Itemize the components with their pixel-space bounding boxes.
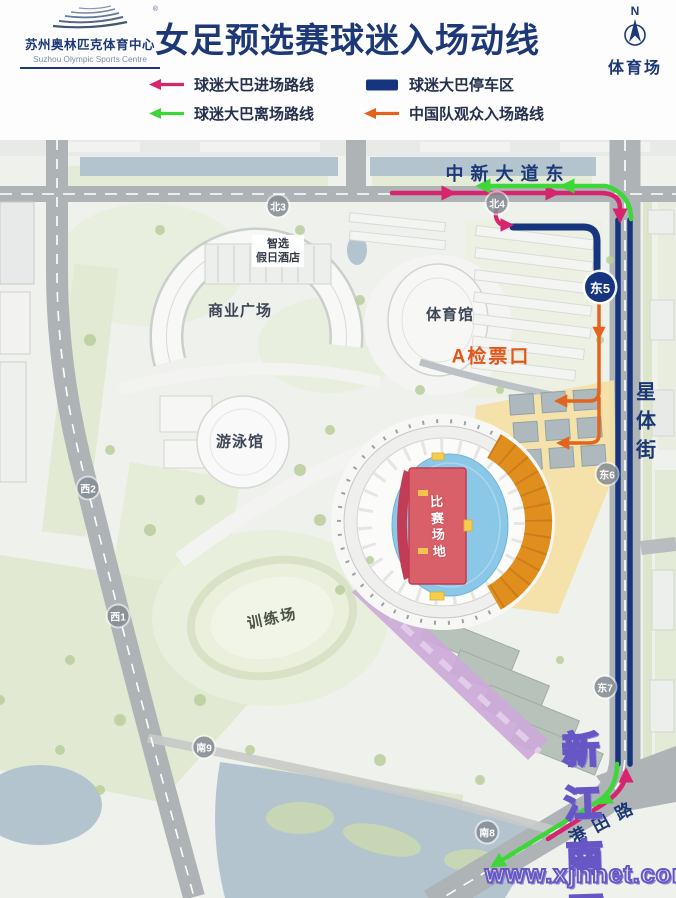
label-ticket-gate-a: A检票口 — [452, 342, 531, 369]
label-swimming-hall: 游泳馆 — [216, 431, 264, 452]
parking-zone-icon — [363, 78, 401, 92]
label-gymnasium: 体育馆 — [426, 304, 474, 325]
orange-arrow-left-icon — [363, 107, 401, 120]
stadium-swoosh-icon — [35, 4, 145, 34]
page-title: 女足预选赛球迷入场动线 — [155, 13, 575, 62]
compass-needle-icon — [620, 18, 650, 48]
logo-rule — [20, 67, 160, 69]
legend-label: 球迷大巴停车区 — [409, 74, 514, 95]
suzhou-olympic-logo: ® 苏州奥林匹克体育中心 Suzhou Olympic Sports Centr… — [20, 4, 160, 69]
gate-badge-east5: 东5 — [585, 272, 615, 302]
legend-item-bus-enter: 球迷大巴进场路线 — [148, 74, 314, 95]
gate-badge-west2: 西2 — [78, 478, 99, 499]
label-match-field: 比赛场地 — [428, 494, 447, 561]
label-commercial-plaza: 商业广场 — [208, 300, 272, 321]
compass-north-label: N — [600, 4, 670, 18]
legend-label: 球迷大巴进场路线 — [194, 74, 314, 95]
label-hotel: 智选 假日酒店 — [252, 235, 304, 267]
road-label-north: 中新大道东 — [446, 160, 571, 186]
legend-label: 球迷大巴离场路线 — [194, 103, 314, 124]
venue-route-map-page: ® 苏州奥林匹克体育中心 Suzhou Olympic Sports Centr… — [0, 0, 676, 898]
watermark-site-url: www.xjnnet.com — [485, 861, 676, 890]
label-hotel-line1: 智选 — [256, 237, 300, 251]
logo-name-en: Suzhou Olympic Sports Centre — [20, 54, 160, 64]
legend-item-china-fans: 中国队观众入场路线 — [363, 103, 544, 124]
road-label-east: 星体街 — [634, 379, 658, 466]
gate-badge-north4: 北4 — [487, 193, 508, 214]
gate-badge-north3: 北3 — [268, 196, 289, 217]
green-arrow-left-icon — [148, 107, 186, 120]
label-hotel-line2: 假日酒店 — [256, 251, 300, 265]
gate-badge-west1: 西1 — [108, 606, 129, 627]
gate-badge-south8: 南8 — [477, 822, 498, 843]
pink-arrow-left-icon — [148, 78, 186, 91]
compass-place-label: 体育场 — [600, 54, 670, 78]
site-map: 中新大道东 星体街 港田路 商业广场 体育馆 游泳馆 训练场 智选 假日酒店 A… — [0, 140, 676, 898]
logo-name-cn: 苏州奥林匹克体育中心 — [20, 34, 160, 53]
header: ® 苏州奥林匹克体育中心 Suzhou Olympic Sports Centr… — [0, 0, 676, 140]
gate-badge-east6: 东6 — [597, 464, 618, 485]
compass: N 体育场 — [600, 4, 670, 78]
legend-item-bus-parking: 球迷大巴停车区 — [363, 74, 514, 95]
legend-item-bus-exit: 球迷大巴离场路线 — [148, 103, 314, 124]
gate-badge-east7: 东7 — [595, 677, 616, 698]
gate-badge-south9: 南9 — [194, 737, 215, 758]
legend-label: 中国队观众入场路线 — [409, 103, 544, 124]
registered-mark: ® — [153, 6, 158, 13]
